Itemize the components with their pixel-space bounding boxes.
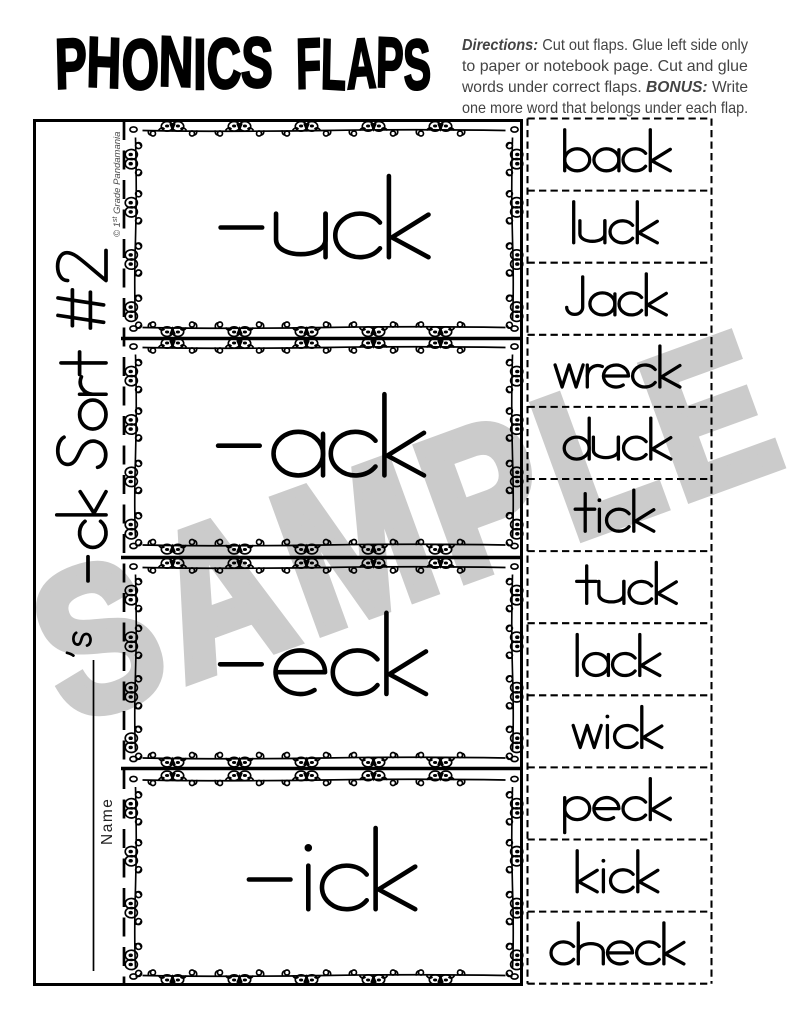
svg-text:© 1st Grade Pandamania: © 1st Grade Pandamania <box>112 132 123 237</box>
svg-text:Name: Name <box>99 798 116 845</box>
